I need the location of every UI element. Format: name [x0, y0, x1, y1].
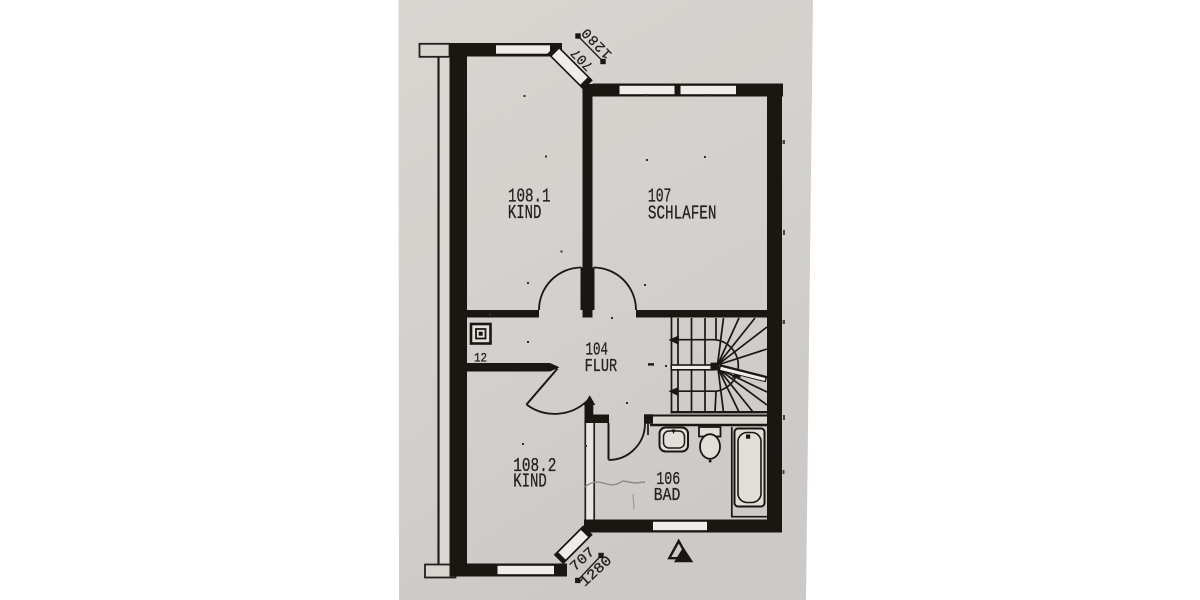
- svg-text:KIND: KIND: [513, 471, 547, 493]
- svg-text:SCHLAFEN: SCHLAFEN: [648, 203, 717, 225]
- svg-text:FLUR: FLUR: [585, 357, 618, 377]
- svg-text:12: 12: [474, 351, 487, 366]
- svg-text:KIND: KIND: [508, 202, 542, 224]
- svg-text:BAD: BAD: [654, 486, 681, 506]
